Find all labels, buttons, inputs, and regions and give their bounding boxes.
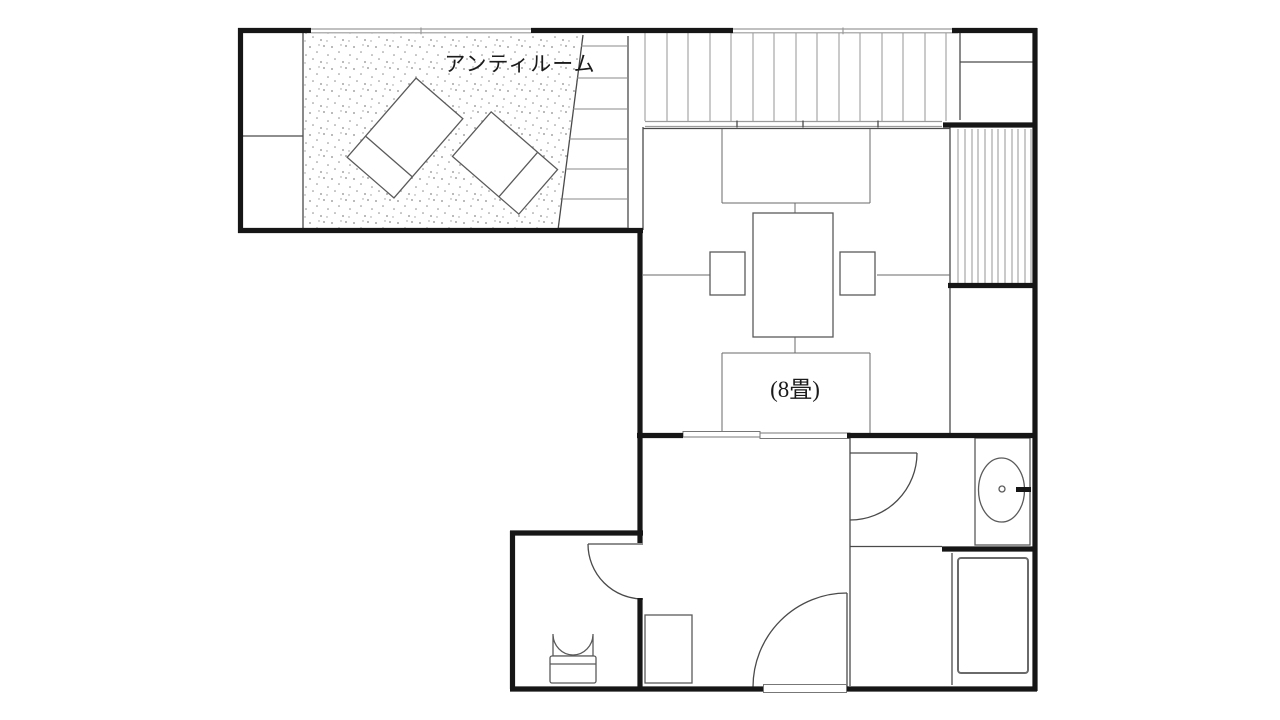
tatami-room: (8畳) [643,121,950,439]
entry-door [753,593,847,687]
entry-threshold [764,685,847,693]
engawa-window [731,28,958,35]
bathtub [958,558,1028,673]
anteroom: アンティルーム [243,28,628,232]
low-table [753,213,833,337]
toilet [550,634,596,683]
floor-plan-image: アンティルーム (8畳) [0,0,1280,720]
tatami-room-label: (8畳) [770,377,820,402]
toilet-door [588,544,643,599]
floor-plan-page: アンティルーム (8畳) [0,0,1280,720]
anteroom-label: アンティルーム [444,52,595,76]
washbasin [975,438,1031,545]
engawa-floor-boards [645,33,946,121]
side-board-strip [958,129,1031,283]
sliding-door-bottom [683,432,850,439]
toilet-room [550,544,643,683]
engawa-corridor [645,28,958,122]
cushion-right [840,252,875,295]
hall-cabinet [645,615,692,683]
hall [645,593,847,693]
anteroom-window [311,28,531,35]
bathroom [850,547,1028,686]
closet-top-right [960,33,1033,120]
washroom-door [850,453,917,520]
cushion-left [710,252,745,295]
anteroom-closet [243,33,303,228]
sliding-door-top [645,121,942,128]
